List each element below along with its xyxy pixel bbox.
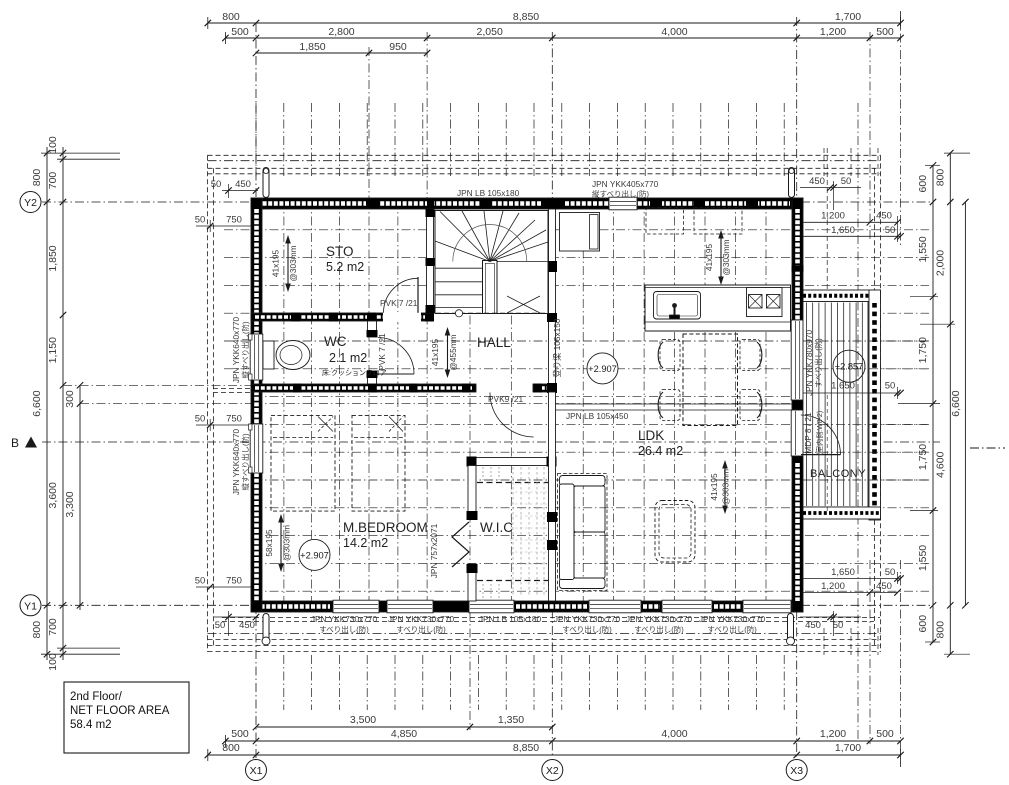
svg-text:3,500: 3,500	[350, 714, 376, 726]
svg-text:@303mm: @303mm	[721, 469, 731, 505]
svg-text:JPN YKK730x770: JPN YKK730x770	[699, 614, 766, 624]
svg-text:500: 500	[231, 26, 249, 38]
svg-text:8,850: 8,850	[513, 11, 539, 23]
svg-text:JPN YKK640x770: JPN YKK640x770	[231, 316, 241, 383]
svg-text:450: 450	[876, 211, 892, 222]
svg-text:1,200: 1,200	[821, 211, 845, 222]
svg-text:58.4 m2: 58.4 m2	[70, 719, 112, 731]
svg-text:450: 450	[809, 176, 825, 187]
svg-text:50: 50	[885, 225, 896, 236]
svg-text:すべり出し(防): すべり出し(防)	[396, 624, 446, 634]
svg-text:41x195: 41x195	[430, 339, 440, 367]
svg-text:700: 700	[47, 172, 59, 190]
svg-text:すべり出し(防): すべり出し(防)	[634, 624, 684, 634]
svg-text:STO: STO	[326, 244, 354, 259]
svg-text:800: 800	[31, 621, 43, 639]
svg-text:1,350: 1,350	[498, 714, 524, 726]
svg-text:登り梁 105x150: 登り梁 105x150	[552, 318, 562, 377]
svg-text:800: 800	[31, 169, 43, 187]
svg-text:2,050: 2,050	[477, 26, 503, 38]
svg-text:JPN YKK730x770: JPN YKK730x770	[626, 614, 693, 624]
svg-text:4,850: 4,850	[391, 728, 417, 740]
svg-text:450: 450	[239, 620, 255, 631]
svg-text:@303mm: @303mm	[282, 525, 292, 561]
svg-text:X3: X3	[790, 765, 803, 777]
svg-text:500: 500	[876, 26, 894, 38]
svg-text:6,600: 6,600	[31, 390, 43, 416]
svg-text:800: 800	[222, 742, 240, 754]
svg-text:2,800: 2,800	[328, 26, 354, 38]
svg-text:4,000: 4,000	[661, 728, 687, 740]
svg-text:1,750: 1,750	[917, 444, 929, 470]
svg-text:800: 800	[222, 11, 240, 23]
svg-text:NET FLOOR AREA: NET FLOOR AREA	[70, 705, 170, 717]
svg-text:すべり出し(防): すべり出し(防)	[319, 624, 369, 634]
svg-text:PVK 7 /21: PVK 7 /21	[380, 298, 418, 308]
svg-text:JPN YKK640x770: JPN YKK640x770	[231, 428, 241, 495]
svg-text:1,150: 1,150	[47, 337, 59, 363]
svg-text:750: 750	[226, 215, 242, 226]
svg-text:950: 950	[389, 41, 407, 53]
svg-text:JPN YKK405x770: JPN YKK405x770	[592, 179, 659, 189]
svg-text:100: 100	[47, 653, 59, 671]
svg-text:300: 300	[64, 390, 76, 408]
svg-text:1,550: 1,550	[917, 236, 929, 262]
svg-text:JPN LB 105x450: JPN LB 105x450	[566, 411, 629, 421]
svg-text:JPN 757x2071: JPN 757x2071	[429, 523, 439, 578]
svg-text:M.BEDROOM: M.BEDROOM	[343, 520, 428, 535]
svg-text:1,650: 1,650	[831, 567, 855, 578]
svg-text:2,000: 2,000	[935, 250, 947, 276]
svg-text:PVK 7 /21: PVK 7 /21	[377, 333, 387, 371]
svg-text:6,600: 6,600	[950, 390, 962, 416]
svg-text:すべり出し(防): すべり出し(防)	[813, 338, 823, 388]
svg-text:50: 50	[195, 215, 206, 226]
svg-text:B: B	[11, 436, 19, 450]
svg-text:1,200: 1,200	[820, 728, 846, 740]
svg-text:JPN LB 105x180: JPN LB 105x180	[479, 614, 542, 624]
svg-text:600: 600	[917, 615, 929, 633]
svg-text:1,850: 1,850	[47, 245, 59, 271]
svg-text:450: 450	[235, 179, 251, 190]
svg-text:100: 100	[47, 136, 59, 154]
svg-text:Y1: Y1	[24, 600, 37, 612]
svg-text:(室内側:W8-2): (室内側:W8-2)	[815, 411, 824, 455]
svg-text:JPN YKK730x770: JPN YKK730x770	[311, 614, 378, 624]
svg-text:JPN YKK730x770: JPN YKK730x770	[388, 614, 455, 624]
svg-text:14.2 m2: 14.2 m2	[343, 536, 388, 550]
svg-text:HALL: HALL	[477, 335, 511, 350]
svg-text:JPN YKK780x970: JPN YKK780x970	[804, 329, 814, 396]
svg-text:600: 600	[917, 175, 929, 193]
svg-text:58x195: 58x195	[264, 529, 274, 557]
svg-text:41x195: 41x195	[704, 244, 714, 272]
svg-text:+2.907: +2.907	[588, 364, 617, 374]
svg-text:1,850: 1,850	[299, 41, 325, 53]
svg-text:W.I.C: W.I.C	[480, 520, 513, 535]
svg-text:2.1 m2: 2.1 m2	[329, 351, 367, 365]
svg-text:@303mm: @303mm	[721, 239, 731, 275]
svg-text:1,550: 1,550	[917, 545, 929, 571]
svg-text:1,700: 1,700	[835, 11, 861, 23]
svg-text:X1: X1	[250, 765, 263, 777]
svg-text:500: 500	[231, 728, 249, 740]
svg-text:3,300: 3,300	[64, 491, 76, 517]
svg-text:LDK: LDK	[638, 428, 664, 443]
svg-text:750: 750	[226, 576, 242, 587]
svg-text:800: 800	[935, 621, 947, 639]
svg-text:26.4 m2: 26.4 m2	[638, 444, 683, 458]
svg-text:JPN LB 105x180: JPN LB 105x180	[457, 188, 520, 198]
svg-text:50: 50	[885, 567, 896, 578]
svg-text:450: 450	[805, 620, 821, 631]
svg-text:縦すべり出し(防): 縦すべり出し(防)	[240, 321, 250, 378]
svg-text:750: 750	[226, 414, 242, 425]
svg-text:すべり出し(防): すべり出し(防)	[707, 624, 757, 634]
svg-text:4,000: 4,000	[661, 26, 687, 38]
svg-text:1,700: 1,700	[835, 742, 861, 754]
svg-text:41x195: 41x195	[271, 250, 281, 278]
svg-text:JPN YKK730x770: JPN YKK730x770	[554, 614, 621, 624]
svg-text:800: 800	[935, 169, 947, 187]
svg-text:+2.857: +2.857	[835, 362, 864, 372]
svg-text:1,200: 1,200	[820, 26, 846, 38]
svg-text:縦すべり出し(防): 縦すべり出し(防)	[592, 189, 649, 199]
svg-text:50: 50	[885, 381, 896, 392]
svg-text:50: 50	[833, 620, 844, 631]
svg-text:@303mm: @303mm	[288, 245, 298, 281]
svg-text:Y2: Y2	[24, 197, 37, 209]
svg-text:1,200: 1,200	[821, 581, 845, 592]
svg-text:50: 50	[195, 414, 206, 425]
svg-text:41x195: 41x195	[709, 473, 719, 501]
svg-text:5.2 m2: 5.2 m2	[326, 260, 364, 274]
svg-text:すべり出し(防): すべり出し(防)	[562, 624, 612, 634]
svg-text:@455mm: @455mm	[448, 334, 458, 370]
svg-text:8,850: 8,850	[513, 742, 539, 754]
svg-text:PVK9 /21: PVK9 /21	[488, 394, 523, 404]
svg-text:MDP 8 / 21: MDP 8 / 21	[803, 412, 813, 454]
svg-text:700: 700	[47, 618, 59, 636]
svg-text:BALCONY: BALCONY	[810, 468, 866, 480]
svg-text:450: 450	[876, 581, 892, 592]
svg-text:500: 500	[876, 728, 894, 740]
svg-text:4,600: 4,600	[935, 451, 947, 477]
svg-text:1,650: 1,650	[831, 225, 855, 236]
svg-text:縦すべり出し(防): 縦すべり出し(防)	[240, 433, 250, 490]
svg-text:WC: WC	[324, 334, 347, 349]
svg-text:3,600: 3,600	[47, 482, 59, 508]
svg-text:50: 50	[841, 176, 852, 187]
svg-text:50: 50	[215, 620, 226, 631]
svg-text:50: 50	[195, 576, 206, 587]
svg-text:2nd Floor/: 2nd Floor/	[70, 691, 123, 703]
svg-text:X2: X2	[546, 765, 559, 777]
svg-text:+2.907: +2.907	[300, 550, 329, 560]
svg-text:50: 50	[211, 179, 222, 190]
